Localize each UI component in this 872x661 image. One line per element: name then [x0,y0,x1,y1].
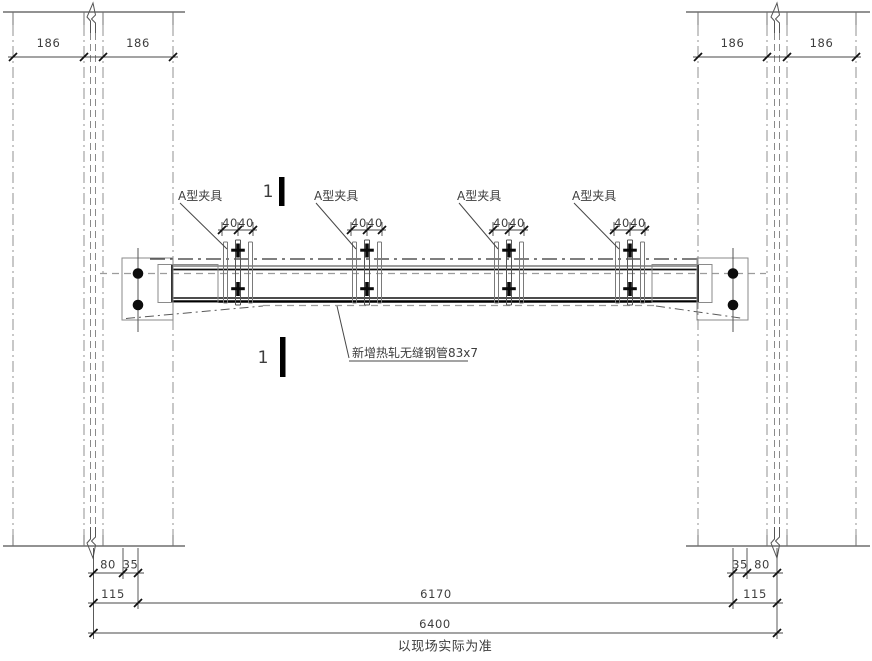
cross-mark [231,287,245,290]
clamp-4: 4040A型夹具 [572,189,649,305]
gusset-plate [697,258,748,320]
drawing-caption: 以现场实际为准 [398,640,493,655]
cross-mark [231,249,245,252]
leader-line [574,203,619,249]
cross-mark [502,287,516,290]
leader-line [316,203,356,249]
cross-mark [623,249,637,252]
section-markers: 1 1 [258,177,286,377]
clamp-label: A型夹具 [314,189,358,203]
break-symbol [87,3,96,33]
break-symbol [771,3,780,33]
pipe-label: 新增热轧无缝钢管83x7 [352,345,478,360]
existing-brace-axis [126,306,263,319]
bottom-dimensions: 80 35 115 35 80 115 6170 6400 以现场实际为准 [88,548,783,655]
dim-text: 40 [351,216,367,230]
dim-text: 40 [614,216,630,230]
right-connection [652,248,748,332]
dim-text: 186 [126,36,150,50]
dim-text: 115 [743,587,767,601]
cross-mark [502,249,516,252]
cross-mark [360,287,374,290]
clamp-label: A型夹具 [457,189,501,203]
bolt [133,300,144,311]
section-cut-bar [279,177,285,206]
dim-text: 186 [810,36,834,50]
clamp-label: A型夹具 [572,189,616,203]
dim-text: 40 [493,216,509,230]
dim-text: 40 [222,216,238,230]
dim-text: 80 [100,558,116,572]
break-symbol [87,527,96,558]
clamp-3: 4040A型夹具 [457,189,528,305]
leader-line [180,203,227,249]
bolt [728,300,739,311]
section-number: 1 [258,348,269,368]
top-dimensions: 186 186 186 186 [8,36,861,57]
dim-text: 186 [37,36,61,50]
section-number: 1 [263,182,274,202]
dim-text: 6170 [420,587,452,601]
dim-text: 40 [630,216,646,230]
section-cut-bar [280,337,286,377]
dimension-ticks-layer [9,53,860,637]
steel-pipe-beam [100,259,766,306]
dim-text: 186 [721,36,745,50]
dim-text: 40 [238,216,254,230]
leader-line [337,306,349,358]
dim-text: 40 [367,216,383,230]
dim-text: 35 [732,558,748,572]
clamp-2: 4040A型夹具 [314,189,386,305]
bolt [133,268,144,279]
cross-mark [360,249,374,252]
gusset-plate [122,258,173,320]
drawing-canvas: 186 186 186 186 1 1 [0,0,872,661]
dim-text: 115 [101,587,125,601]
break-symbol [771,527,780,558]
dim-text: 80 [754,558,770,572]
cross-mark [623,287,637,290]
dim-text: 40 [509,216,525,230]
pipe-callout: 新增热轧无缝钢管83x7 [337,306,478,361]
dim-text: 6400 [419,617,451,631]
clamp-label: A型夹具 [178,189,222,203]
right-column [686,3,870,558]
dim-text: 35 [123,558,139,572]
structural-detail-drawing: 186 186 186 186 1 1 [0,0,872,661]
bolt [728,268,739,279]
clamps-layer: 4040A型夹具4040A型夹具4040A型夹具4040A型夹具 [178,189,649,305]
